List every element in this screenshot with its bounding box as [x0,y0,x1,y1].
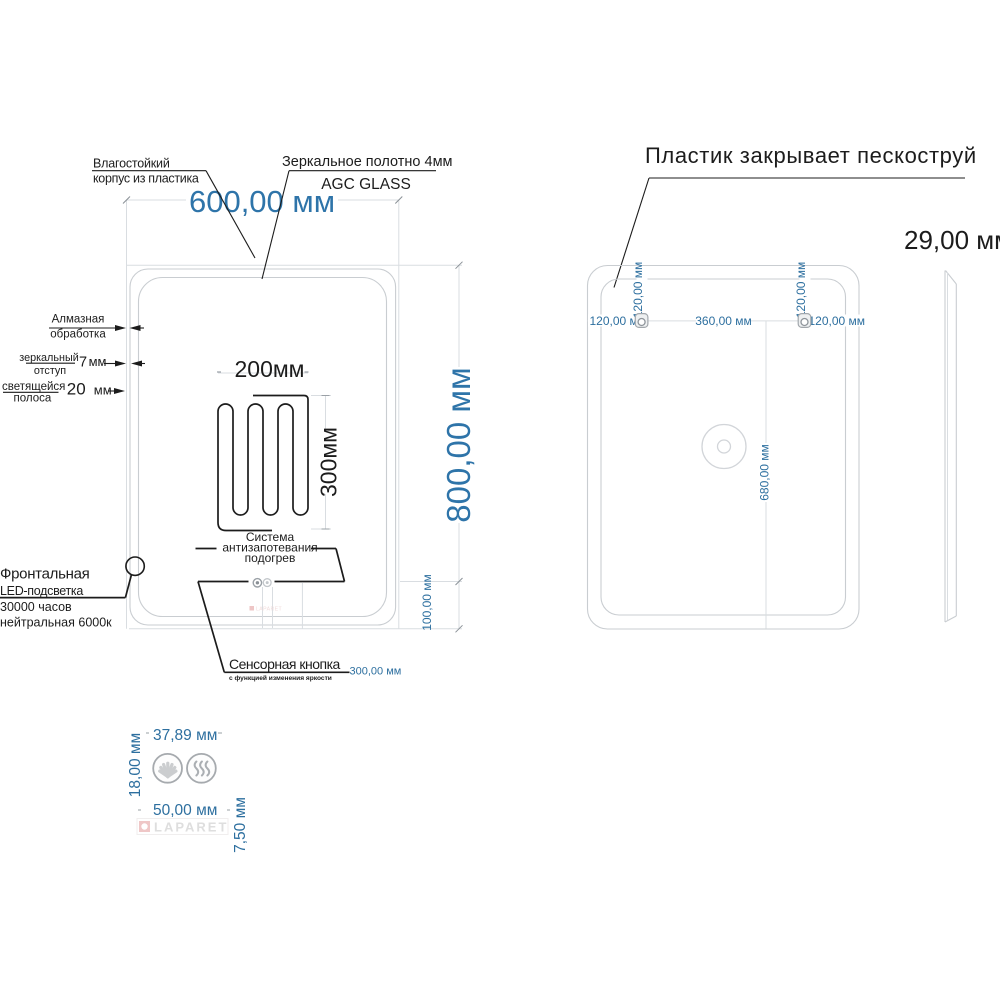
svg-text:нейтральная 6000к: нейтральная 6000к [0,616,112,630]
svg-text:корпус из пластика: корпус из пластика [93,172,199,186]
svg-text:Зеркальное полотно 4мм: Зеркальное полотно 4мм [282,154,453,170]
svg-text:AGC GLASS: AGC GLASS [321,176,411,193]
svg-text:120,00 мм: 120,00 мм [809,314,866,328]
svg-text:Сенсорная кнопка: Сенсорная кнопка [229,656,341,672]
svg-text:7: 7 [79,355,87,371]
svg-text:с функцией изменения яркости: с функцией изменения яркости [229,674,332,682]
svg-text:100,00 мм: 100,00 мм [420,574,434,631]
svg-text:29,00 мм: 29,00 мм [904,225,1000,255]
svg-text:мм: мм [94,383,112,398]
svg-text:LAPARET: LAPARET [154,820,228,835]
svg-text:30000 часов: 30000 часов [0,600,72,614]
svg-text:Пластик закрывает пескоструй: Пластик закрывает пескоструй [645,143,977,168]
svg-text:300,00 мм: 300,00 мм [350,666,402,678]
svg-text:800,00 мм: 800,00 мм [440,367,477,522]
svg-text:отступ: отступ [34,365,66,377]
svg-text:LED-подсветка: LED-подсветка [0,584,83,598]
svg-text:200мм: 200мм [235,356,305,382]
svg-text:600,00 мм: 600,00 мм [189,184,335,219]
svg-text:20: 20 [67,380,86,399]
svg-text:Влагостойкий: Влагостойкий [93,157,170,171]
svg-text:мм: мм [89,354,107,369]
svg-text:50,00 мм: 50,00 мм [153,802,217,819]
svg-text:светящейся: светящейся [2,381,65,393]
svg-text:18,00 мм: 18,00 мм [127,733,144,797]
svg-text:120,00 мм: 120,00 мм [631,262,645,319]
svg-text:Алмазная: Алмазная [52,314,105,326]
svg-text:120,00 мм: 120,00 мм [794,262,808,319]
svg-text:300мм: 300мм [316,427,342,497]
svg-text:обработка: обработка [50,329,106,341]
svg-text:Фронтальная: Фронтальная [0,566,90,583]
svg-text:подогрев: подогрев [245,551,296,565]
svg-text:зеркальный: зеркальный [19,352,78,364]
svg-text:LAPARET: LAPARET [256,607,282,613]
svg-text:37,89 мм: 37,89 мм [153,727,217,744]
svg-text:680,00 мм: 680,00 мм [758,444,772,501]
svg-text:360,00 мм: 360,00 мм [695,314,752,328]
svg-text:7,50 мм: 7,50 мм [232,797,249,853]
svg-text:полоса: полоса [14,393,52,405]
